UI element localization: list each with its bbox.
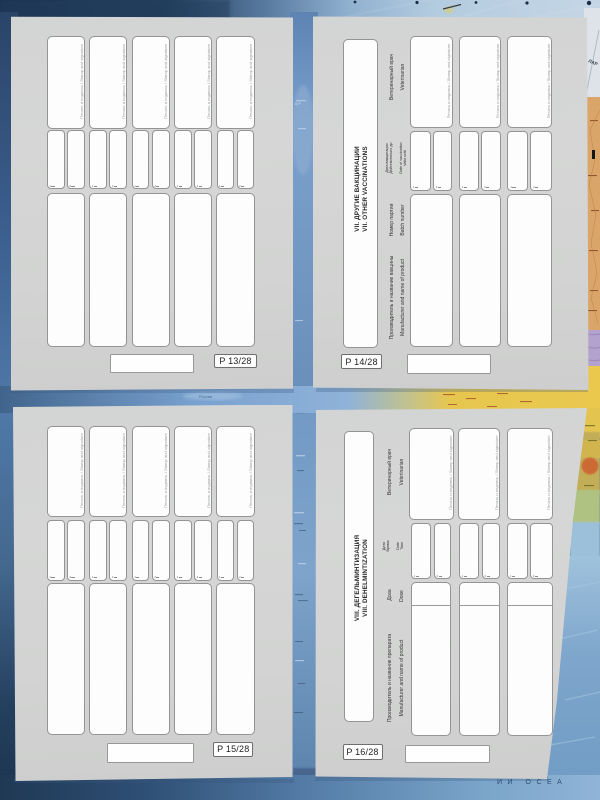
svg-text:России: России (199, 394, 212, 399)
svg-text:А Р: А Р (295, 102, 301, 106)
